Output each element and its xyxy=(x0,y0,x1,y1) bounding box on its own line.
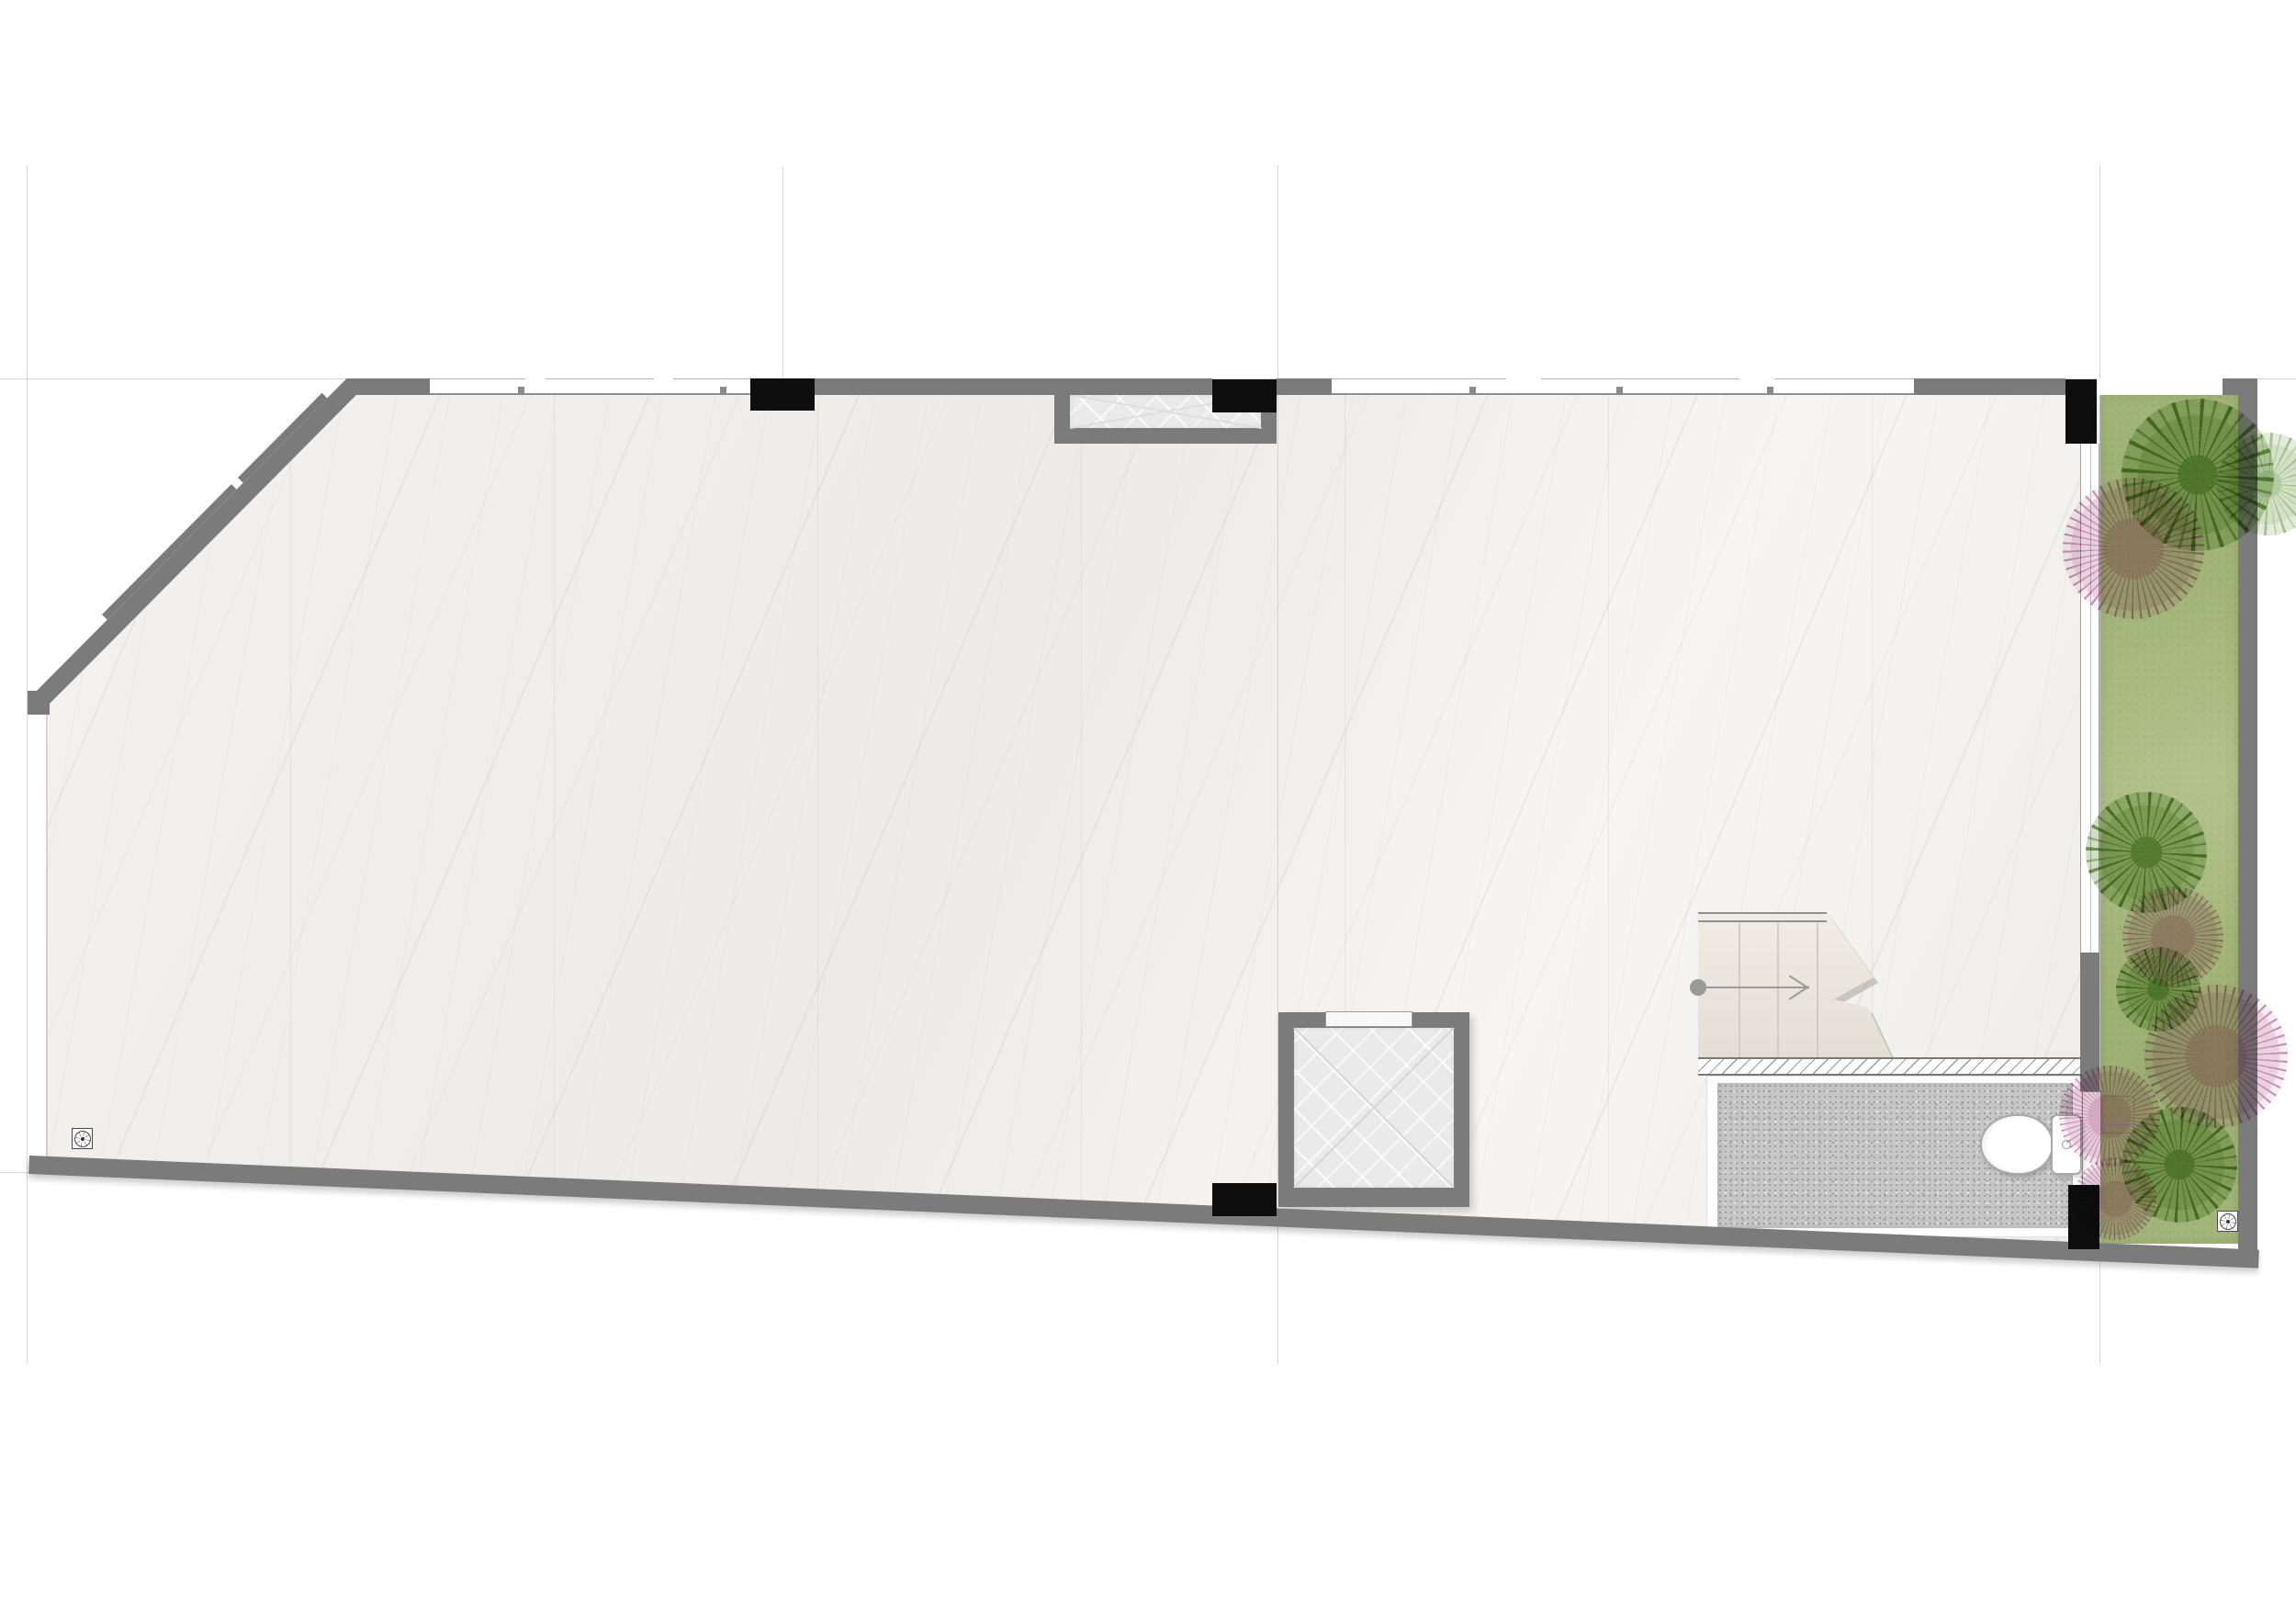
window-mullion-1 xyxy=(518,387,524,395)
stair-top-border-inner xyxy=(1698,920,1827,922)
window-mullion-4 xyxy=(1616,387,1623,395)
grid-line-v-1 xyxy=(27,165,28,1364)
grid-line-v-2 xyxy=(782,165,783,378)
window-mullion-5 xyxy=(1767,387,1773,395)
floor-plan-canvas xyxy=(0,0,2296,1624)
top-wall-a xyxy=(346,378,430,395)
top-window-2 xyxy=(1332,378,1914,395)
stair-top-border-outer xyxy=(1698,912,1827,914)
floor-drain-garden xyxy=(2217,1211,2238,1232)
top-window-1 xyxy=(430,378,750,395)
floor-left-open-edge xyxy=(46,710,48,1156)
stair-tread-2 xyxy=(1777,923,1779,1057)
stair-tread-3 xyxy=(1817,923,1818,1057)
top-wall-d xyxy=(1914,378,2065,395)
column-top-1 xyxy=(750,378,815,411)
angled-wall-endcap xyxy=(28,691,50,715)
top-opening-garden xyxy=(2097,378,2223,395)
floor-drain-left xyxy=(72,1128,93,1149)
stair-tread-1 xyxy=(1739,923,1740,1057)
column-top-right xyxy=(2065,379,2097,444)
top-wall-b xyxy=(815,378,1212,395)
window-mullion-2 xyxy=(720,387,726,395)
stair-walk-line xyxy=(1703,987,1806,988)
toilet-bowl xyxy=(1980,1114,2054,1175)
window-mullion-3 xyxy=(1469,387,1476,395)
hatch-border-top xyxy=(1698,1057,2082,1059)
elevator-door xyxy=(1325,1011,1412,1027)
stair-start-dot xyxy=(1690,979,1706,996)
column-top-2 xyxy=(1212,379,1277,412)
tree-pink-upper xyxy=(2063,478,2204,619)
top-wall-c xyxy=(1277,378,1332,395)
tree-green-bottom xyxy=(2122,1107,2237,1223)
column-bottom-1 xyxy=(1212,1183,1277,1216)
tree-pink-large xyxy=(2144,985,2288,1128)
